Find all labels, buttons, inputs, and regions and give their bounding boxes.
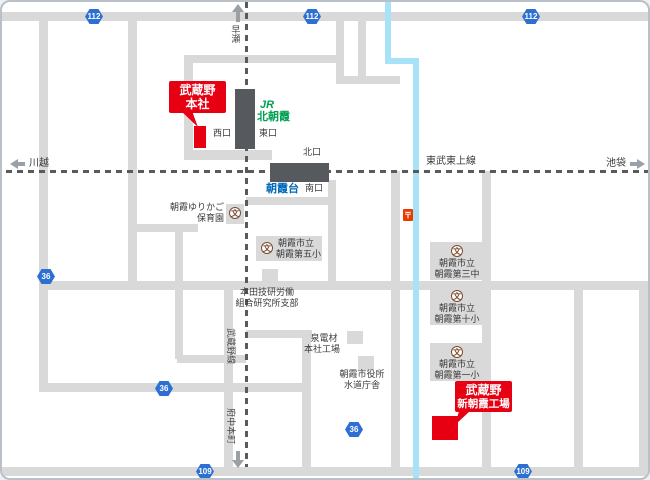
tobu-tojo-line-label: 東武東上線: [426, 156, 476, 168]
north-exit-label: 北口: [303, 147, 321, 157]
direction-right-label: 池袋: [606, 158, 626, 170]
honda-label-line2: 組合研究所支部: [224, 298, 310, 308]
arrow-left-icon: [17, 162, 25, 166]
factory-building-marker: [432, 416, 458, 440]
izumi-label-line1: 泉電材: [304, 333, 344, 343]
road-vertical-2: [128, 12, 137, 290]
school10-label-line2: 朝霞第十小: [430, 314, 484, 324]
nursery-school-icon: 文: [229, 207, 241, 219]
direction-left-label: 川越: [29, 158, 49, 170]
izumi-building-1: [347, 331, 363, 344]
east-exit-label: 東口: [259, 128, 277, 138]
road-ne-mini-horizontal: [336, 76, 400, 84]
river-lower: [413, 58, 419, 480]
road-vertical-9: [639, 290, 648, 472]
headquarters-label-line1: 武蔵野: [169, 84, 226, 97]
road-main-middle: [39, 281, 650, 290]
izumi-label-line2: 本社工場: [300, 344, 344, 354]
asakadai-station-building: [270, 163, 329, 182]
nursery-label-line1: 朝霞ゆりかご: [162, 202, 224, 212]
school10-label-line1: 朝霞市立: [430, 303, 484, 313]
factory-label-line1: 武蔵野: [455, 384, 512, 397]
musashino-line-track: [245, 2, 248, 467]
road-west-exit-horizontal: [184, 55, 336, 63]
headquarters-building-marker: [194, 126, 206, 148]
road-left-vertical: [39, 12, 48, 392]
nursery-label-line2: 保育園: [162, 213, 224, 223]
road-riverside-vertical: [391, 171, 400, 472]
river-upper: [385, 2, 391, 62]
kita-asaka-station-name: 北朝霞: [257, 111, 290, 124]
school1-label-line1: 朝霞市立: [430, 359, 484, 369]
school3c-label-line2: 朝霞第三中: [430, 269, 484, 279]
school5-icon: 文: [261, 242, 273, 254]
road-ne-mini-vertical-2: [358, 21, 366, 84]
honda-building: [262, 269, 278, 282]
direction-down-label: 府中本町: [226, 403, 236, 449]
arrow-up-icon: [236, 11, 240, 22]
factory-bubble: 武蔵野 新朝霞工場: [455, 381, 512, 412]
school10-icon: 文: [451, 290, 463, 302]
cityhall-label-line2: 水道庁舎: [332, 380, 392, 390]
musashino-line-label: 武蔵野線: [226, 323, 236, 369]
road-asakadai-south: [246, 197, 336, 205]
cityhall-label-line1: 朝霞市役所: [332, 369, 392, 379]
road-ne-mini-vertical-1: [336, 21, 344, 84]
direction-up-label: 早瀬: [230, 25, 240, 43]
izumi-building-2: [358, 356, 374, 370]
honda-label-line1: 本田技研労働: [224, 287, 310, 297]
school5-label-line1: 朝霞市立: [278, 238, 314, 248]
arrow-right-head-icon: [637, 159, 645, 169]
school1-icon: 文: [451, 346, 463, 358]
factory-label-line2: 新朝霞工場: [455, 398, 512, 410]
route-shield-36-c: 36: [345, 422, 363, 437]
kita-asaka-station-building: [235, 89, 255, 149]
asakadai-station-name: 朝霞台: [266, 183, 299, 196]
jr-logo: JR: [260, 99, 274, 112]
road-honda-west-vertical: [175, 228, 183, 359]
road-vertical-8: [574, 290, 583, 472]
road-bottom: [2, 467, 650, 476]
arrow-down-head-icon: [232, 460, 244, 468]
school5-label-line2: 朝霞第五小: [276, 249, 321, 259]
south-exit-label: 南口: [305, 183, 323, 193]
school3c-label-line1: 朝霞市立: [430, 258, 484, 268]
headquarters-label-line2: 本社: [169, 98, 226, 111]
road-station-plaza: [186, 150, 272, 160]
road-east-of-nursery: [328, 180, 336, 290]
west-exit-label: 西口: [213, 128, 231, 138]
school1-label-line2: 朝霞第一小: [430, 370, 484, 380]
arrow-up-head-icon: [232, 4, 244, 12]
post-office-icon: 〒: [403, 209, 413, 221]
road-nursery-south: [128, 224, 198, 232]
school3c-icon: 文: [451, 245, 463, 257]
access-map: 早瀬 府中本町 川越 池袋 東武東上線 武蔵野線 JR 北朝霞 西口 東口 北口…: [0, 0, 650, 480]
headquarters-bubble: 武蔵野 本社: [169, 81, 226, 113]
road-route36-horizontal: [39, 383, 311, 392]
